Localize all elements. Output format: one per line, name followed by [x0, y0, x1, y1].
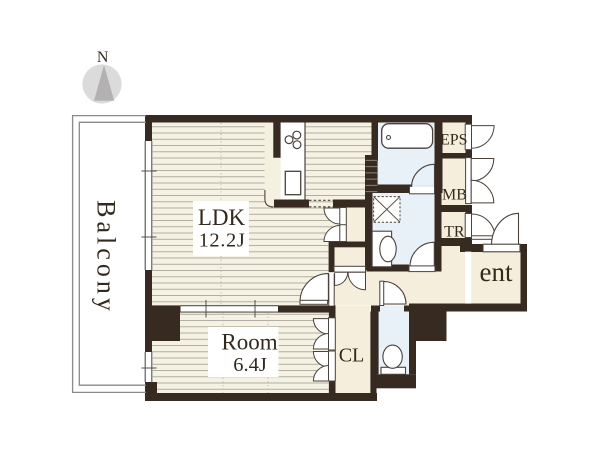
- svg-text:N: N: [97, 49, 109, 66]
- svg-text:TR: TR: [444, 224, 465, 241]
- svg-text:12.2J: 12.2J: [199, 230, 246, 252]
- svg-text:Balcony: Balcony: [92, 200, 121, 315]
- svg-text:Room: Room: [221, 330, 277, 355]
- svg-text:EPS: EPS: [440, 132, 468, 149]
- svg-text:LDK: LDK: [198, 205, 246, 230]
- svg-text:ent: ent: [480, 257, 513, 287]
- svg-text:6.4J: 6.4J: [233, 354, 267, 376]
- svg-text:CL: CL: [339, 345, 365, 367]
- svg-text:MB: MB: [442, 187, 467, 204]
